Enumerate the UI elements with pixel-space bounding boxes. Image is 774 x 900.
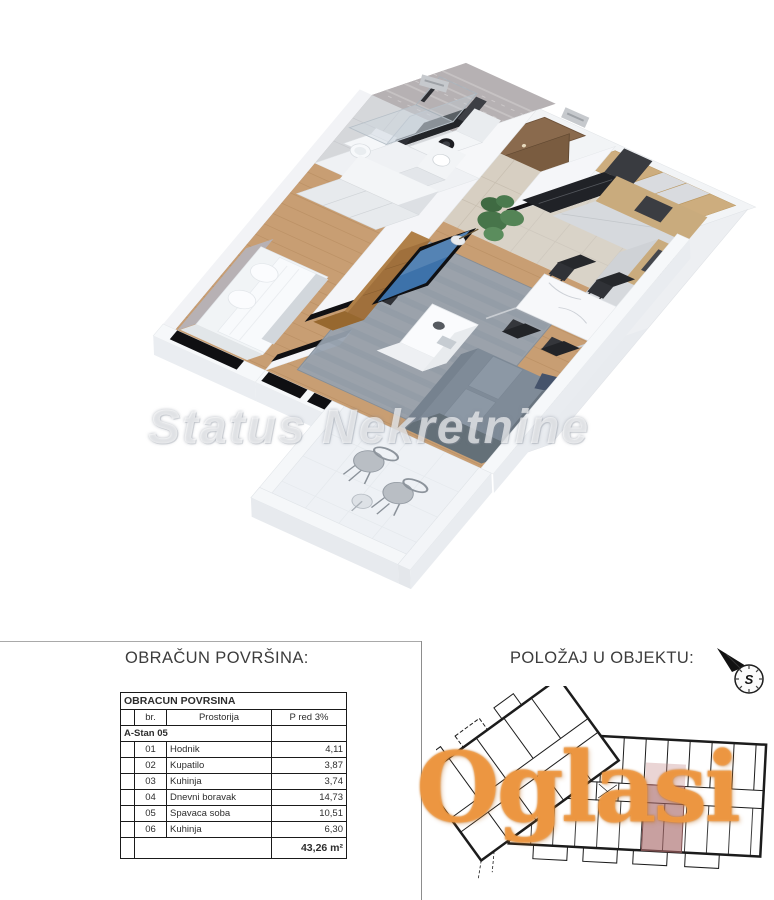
table-row: 01Hodnik4,11 [121, 742, 347, 758]
apartment-3d-render: Status Nekretnine [0, 0, 774, 640]
table-row: 02Kupatilo3,87 [121, 758, 347, 774]
table-row: 04Dnevni boravak14,73 [121, 790, 347, 806]
table-row: 06Kuhinja6,30 [121, 822, 347, 838]
building-plan [436, 686, 772, 896]
panel-divider-vertical [421, 641, 422, 900]
table-title: OBRACUN POVRSINA [121, 693, 347, 710]
col-spacer [121, 710, 135, 726]
highlighted-unit [641, 784, 684, 852]
apartment-3d-svg [0, 0, 774, 640]
areas-heading: OBRAČUN POVRŠINA: [125, 649, 309, 668]
col-area: P red 3% [272, 710, 347, 726]
total-area: 43,26 m² [272, 838, 347, 859]
position-heading: POLOŽAJ U OBJEKTU: [510, 649, 694, 668]
col-room: Prostorija [167, 710, 272, 726]
col-br: br. [135, 710, 167, 726]
areas-table: OBRACUN POVRSINA br. Prostorija P red 3%… [120, 692, 347, 859]
table-row: 03Kuhinja3,74 [121, 774, 347, 790]
unit-label: A-Stan 05 [121, 726, 272, 742]
total-row: 43,26 m² [121, 838, 347, 859]
table-row: 05Spavaca soba10,51 [121, 806, 347, 822]
panel-divider-horizontal [0, 641, 421, 642]
listing-sheet: { "watermarks": { "plan_watermark": "Sta… [0, 0, 774, 900]
compass-north-letter: S [745, 672, 754, 687]
